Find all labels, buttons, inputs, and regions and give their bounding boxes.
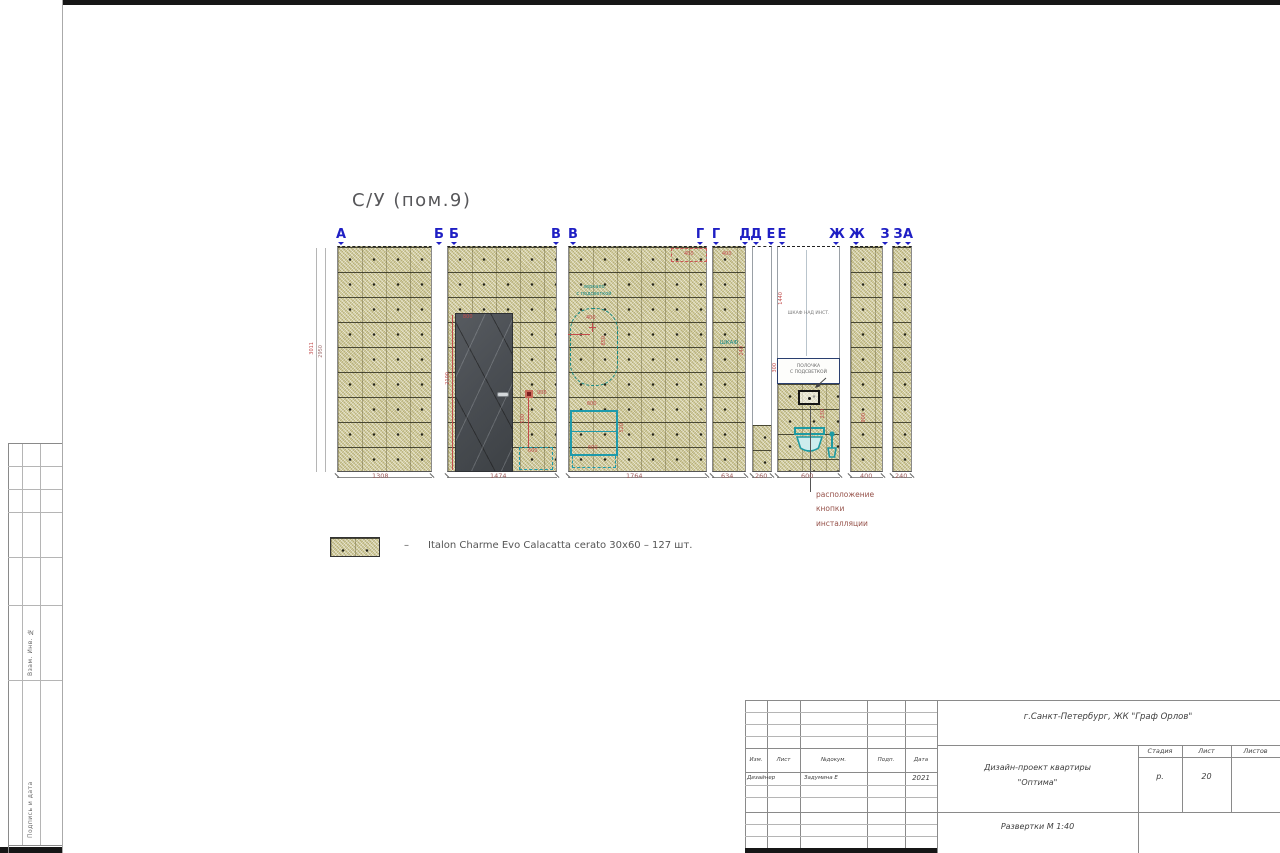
tb-name: Задумина Е [804,775,838,781]
flush-note-line3: инсталляции [816,517,874,531]
red-dim: 850 [602,336,607,346]
frame-left-line [62,0,63,853]
flush-note-line1: расположение [816,488,874,502]
tb-doc-name: Развертки М 1:40 [937,822,1138,831]
frame-bottom-left-bar [0,847,62,853]
tb-sheet-value: 20 [1182,772,1231,781]
red-ext-line [568,334,590,335]
bottom-dim: 260 [755,473,767,480]
stamp-vzam-label: Взам. Инв. № [27,610,34,676]
tb-col-list: Лист [767,757,800,763]
axis-label: Б [447,228,461,248]
stamp-line [8,557,62,558]
stamp-line [8,845,62,846]
wall-panel-g-d [712,246,746,472]
tb-line [745,836,937,837]
tb-line [745,700,746,848]
height-dim-line [316,248,317,472]
tb-project-line1: Дизайн-проект квартиры [937,763,1138,772]
axis-label: Е [775,228,789,248]
wall-panel-zh-z [850,246,883,472]
tb-line [745,772,937,773]
tb-stage-value: р. [1138,772,1182,781]
tb-line [745,724,937,725]
bottom-dim: 634 [721,473,733,480]
stamp-line [8,489,62,490]
mirror-label-line2: с подсветкой [576,291,611,297]
tb-line [745,748,937,749]
wall-hung-toilet-icon [791,427,839,463]
bottom-dim: 400 [860,473,872,480]
red-dim: 900 [537,391,547,396]
shelf-label-line1: ПОЛОЧКА [797,364,820,369]
inst-cabinet-area [777,246,840,358]
legend-dash: – [404,540,409,551]
axis-label: А [334,228,348,248]
red-dim: 800 [463,315,473,320]
tb-sheet-col: Лист [1182,747,1231,755]
axis-label: Ж [829,228,843,248]
bottom-dim: 1764 [626,473,643,480]
red-dim: 2100 [446,372,451,385]
cabinet-plinth [572,456,616,468]
mirror-label: зеркало с подсветкой [562,284,626,297]
wall-panel-z-a [892,246,912,472]
axis-label: Д [749,228,763,248]
red-dim: 600 [588,446,598,451]
tb-col-docnum: №докум. [800,757,867,763]
frame-bottom-mid-bar [745,848,937,853]
red-dim: 500 [521,414,526,424]
bottom-dim: 600 [801,473,813,480]
stamp-line [8,512,62,513]
tb-col-podp: Подп. [867,757,905,763]
axis-label: А [901,228,915,248]
tb-line [745,736,937,737]
stamp-line [22,443,23,845]
bottom-dim: 1308 [372,473,389,480]
axis-label: З [878,228,892,248]
switch-icon [525,390,533,398]
tb-line [745,712,937,713]
red-dim-line [452,315,453,470]
red-dim: 520 [620,423,625,433]
flush-button [798,390,820,405]
stamp-line [8,443,62,444]
bottom-dim: 240 [895,473,907,480]
stamp-line [8,680,62,681]
mirror-label-line1: зеркало [583,284,604,290]
tb-line [745,824,937,825]
shelf-label-line2: С ПОДСВЕТКОЙ [790,370,827,375]
red-dim: 400 [684,252,694,257]
red-dim: 400 [722,252,732,257]
red-dim: 1440 [779,292,784,305]
tb-line [1231,745,1232,812]
tb-line [767,700,768,848]
red-dim: 600 [528,449,538,454]
sconce-icon [589,327,596,328]
tb-col-data: Дата [905,757,937,763]
cabinet-drawer-line [572,431,616,432]
tb-line [745,797,937,798]
tb-line [1138,745,1139,853]
tb-location: г.Санкт-Петербург, ЖК "Граф Орлов" [940,712,1276,722]
tb-line [867,700,868,848]
tb-line [800,700,801,848]
axis-label: В [549,228,563,248]
axis-label: Г [693,228,707,248]
tb-line [745,785,937,786]
wall-panel-d-e [752,425,772,472]
flush-note: расположение кнопки инсталляции [816,488,874,531]
height-dim: 3011 [310,342,315,355]
room-title: С/У (пом.9) [352,190,471,211]
red-dim-line [528,398,529,447]
inst-cabinet-label: ШКАФ НАД ИНСТ. [779,311,838,317]
tb-line [937,745,1280,746]
leader-arrow-icon [812,377,828,390]
frame-top-bar [62,0,1280,5]
red-dim: 600 [587,402,597,407]
height-dim-line [325,248,326,472]
red-dim: 230 [821,409,826,419]
axis-label: Ж [849,228,863,248]
legend-text: Italon Charme Evo Calacatta cerato 30x60… [428,540,692,551]
tb-line [745,812,1280,813]
wall-panel-a-b [337,246,432,472]
tb-project-line2: "Оптима" [937,778,1138,787]
stamp-line [8,605,62,606]
tb-line [1138,757,1280,758]
axis-label: Г [709,228,723,248]
door [455,313,513,472]
tb-sheets-col: Листов [1231,747,1280,755]
stamp-line [8,443,9,853]
wall-panel-d-e-top [752,246,772,425]
inst-cabinet-door-split [806,250,807,356]
shelf-label: ПОЛОЧКА С ПОДСВЕТКОЙ [779,364,838,376]
stamp-line [40,443,41,845]
height-dim: 2950 [319,345,324,358]
door-handle-icon [497,392,509,397]
red-dim: 240 [740,346,745,356]
stamp-podpis-label: Подпись и дата [27,698,34,838]
legend-swatch [330,537,380,557]
axis-label: В [566,228,580,248]
stamp-line [8,466,62,467]
tb-col-izm: Изм. [745,757,767,763]
flush-note-line2: кнопки [816,502,874,516]
tb-line [745,700,1280,701]
red-dim: 400 [586,316,596,321]
tb-date: 2021 [905,774,937,782]
bottom-dim: 1474 [490,473,507,480]
axis-label: Б [432,228,446,248]
red-dim: 900 [862,413,867,423]
tb-stage-col: Стадия [1138,747,1182,755]
red-dim: 300 [773,363,778,373]
tb-role: Дизайнер [747,775,775,781]
